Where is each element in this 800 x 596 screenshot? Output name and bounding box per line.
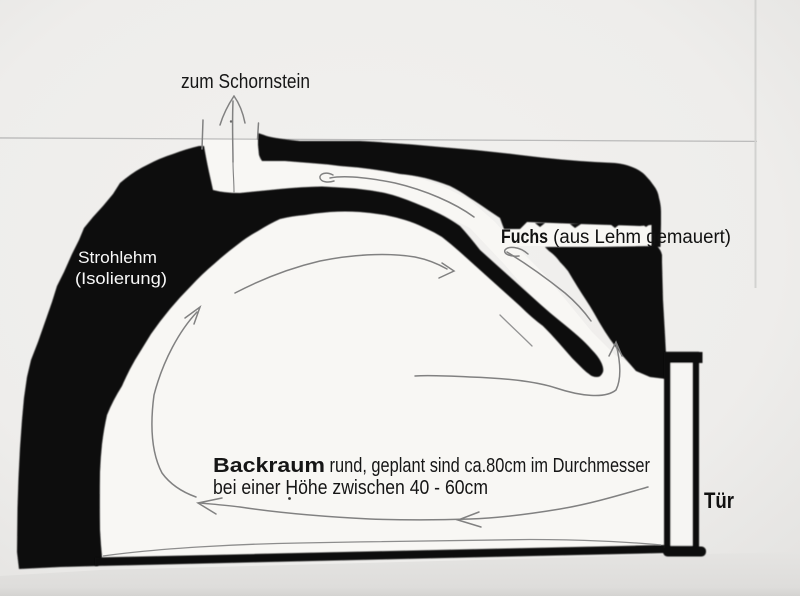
svg-text:zum Schornstein: zum Schornstein (181, 71, 310, 93)
svg-text:(Isolierung): (Isolierung) (75, 269, 167, 288)
svg-text:bei einer Höhe zwischen 40 - 6: bei einer Höhe zwischen 40 - 60cm (213, 477, 488, 499)
svg-text:Fuchs (aus Lehm gemauert): Fuchs (aus Lehm gemauert) (501, 227, 731, 248)
svg-text:Strohlehm: Strohlehm (78, 248, 157, 267)
svg-text:Backraum rund, geplant sind ca: Backraum rund, geplant sind ca.80cm im D… (213, 455, 650, 477)
svg-text:Tür: Tür (704, 488, 734, 513)
